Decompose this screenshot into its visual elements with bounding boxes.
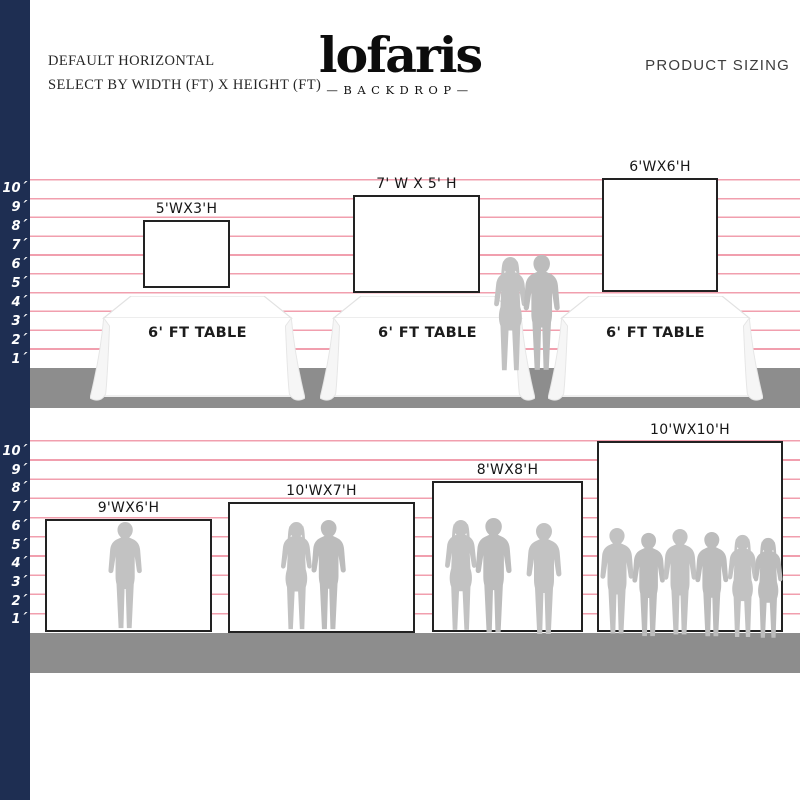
backdrop-10x10 [597,441,783,632]
backdrop-6x6 [602,178,718,292]
brand-logo-tagline: —BACKDROP— [290,83,510,97]
page-title: PRODUCT SIZING [640,57,790,74]
product-sizing-infographic: 6' FT TABLE 6' FT TABLE 6' FT TABLE 5'WX… [0,0,800,800]
ruler-row2-9ft: 9´ [0,463,27,479]
brand-logo-text: lofaris [290,30,510,81]
ruler-row2-4ft: 4´ [0,556,27,572]
ruler-row1-10ft: 10´ [0,181,27,197]
ruler-row1-9ft: 9´ [0,200,27,216]
backdrop-5x3 [143,220,230,288]
backdrop-10x10-label: 10'WX10'H [567,422,800,438]
ruler-row1-3ft: 3´ [0,314,27,330]
table-label-1: 6' FT TABLE [90,325,305,341]
backdrop-7x5 [353,195,480,293]
ruler-row2-8ft: 8´ [0,481,27,497]
ruler-row1-5ft: 5´ [0,276,27,292]
header-line2: SELECT BY WIDTH (FT) X HEIGHT (FT) [48,74,321,98]
ruler-row1-2ft: 2´ [0,333,27,349]
ruler-row2-6ft: 6´ [0,519,27,535]
backdrop-8x8-label: 8'WX8'H [402,462,613,478]
ruler-row2-7ft: 7´ [0,500,27,516]
table-label-2: 6' FT TABLE [320,325,535,341]
header-line1: DEFAULT HORIZONTAL [48,50,321,74]
ruler-row2-10ft: 10´ [0,444,27,460]
table-label-3: 6' FT TABLE [548,325,763,341]
backdrop-10x7-label: 10'WX7'H [198,483,445,499]
backdrop-8x8 [432,481,583,632]
ruler-row1-4ft: 4´ [0,295,27,311]
backdrop-5x3-label: 5'WX3'H [113,201,260,217]
backdrop-9x6 [45,519,212,632]
ruler-row2-2ft: 2´ [0,594,27,610]
brand-logo: lofaris —BACKDROP— [290,30,510,97]
backdrop-7x5-label: 7' W X 5' H [323,176,510,192]
ruler-row1-7ft: 7´ [0,238,27,254]
header-instructions: DEFAULT HORIZONTAL SELECT BY WIDTH (FT) … [48,50,321,98]
ruler-row2-5ft: 5´ [0,538,27,554]
backdrop-10x7 [228,502,415,633]
ruler-row1-1ft: 1´ [0,352,27,368]
ruler-row1-6ft: 6´ [0,257,27,273]
ruler-row2-3ft: 3´ [0,575,27,591]
ruler-bar [0,0,30,800]
floor-row2 [30,633,800,673]
ruler-row1-8ft: 8´ [0,219,27,235]
table-illustration-3 [548,296,763,408]
backdrop-6x6-label: 6'WX6'H [572,159,748,175]
table-illustration-2 [320,296,535,408]
backdrop-9x6-label: 9'WX6'H [15,500,242,516]
ruler-row2-1ft: 1´ [0,612,27,628]
table-illustration-1 [90,296,305,408]
